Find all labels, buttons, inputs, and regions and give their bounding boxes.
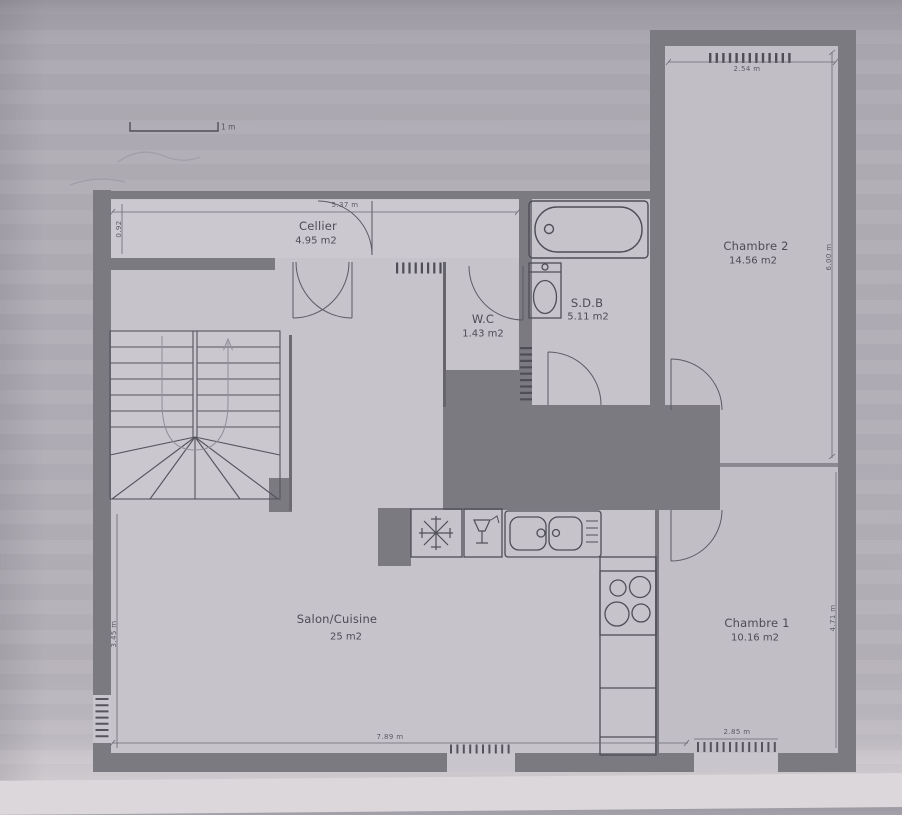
room-label-chambre2: Chambre 2 bbox=[723, 239, 788, 253]
dimension-label-chambre1-height: 4.71 m bbox=[829, 604, 837, 631]
wall-chambre2-top bbox=[650, 30, 856, 46]
wall-left bbox=[93, 190, 111, 771]
window-salon-gap bbox=[447, 753, 515, 772]
pencil-scribble bbox=[70, 152, 200, 185]
window-chambre1-gap bbox=[694, 753, 778, 772]
wall-chambre-divider bbox=[720, 463, 838, 467]
wall-kitchen-stub bbox=[378, 508, 411, 566]
room-area-chambre1: 10.16 m2 bbox=[731, 633, 779, 644]
room-label-cellier: Cellier bbox=[299, 219, 337, 233]
room-label-sdb: S.D.B bbox=[571, 296, 603, 310]
scale-label: 1 m bbox=[221, 123, 235, 132]
snowflake-icon bbox=[419, 516, 453, 550]
room-area-sdb: 5.11 m2 bbox=[567, 312, 609, 323]
dimension-label-salon-width: 7.89 m bbox=[376, 733, 403, 741]
scale-bar bbox=[130, 122, 218, 131]
wall-wc-left bbox=[443, 262, 446, 407]
floor-plan bbox=[0, 0, 902, 797]
paper-edge bbox=[0, 773, 902, 815]
room-area-cellier: 4.95 m2 bbox=[295, 236, 337, 247]
wall-right bbox=[838, 30, 856, 772]
wall-under-cellier bbox=[93, 258, 275, 270]
dimension-label-cellier-depth: 0.92 bbox=[115, 220, 123, 237]
wall-chambre2-left bbox=[650, 46, 665, 410]
wall-stair-right bbox=[289, 335, 292, 511]
floor-plan-drawing bbox=[0, 0, 902, 797]
room-label-salon: Salon/Cuisine bbox=[297, 612, 377, 626]
room-label-chambre1: Chambre 1 bbox=[724, 616, 789, 630]
wall-wc-bottom bbox=[443, 370, 527, 410]
wall-top-cellier-sdb bbox=[93, 191, 652, 199]
room-area-salon: 25 m2 bbox=[330, 632, 362, 643]
wall-middle-band bbox=[443, 405, 720, 510]
room-label-wc: W.C bbox=[472, 312, 494, 326]
dimension-label-chambre2-height: 6.00 m bbox=[825, 243, 833, 270]
dimension-label-chambre1-window: 2.85 m bbox=[723, 728, 750, 736]
dimension-label-cellier-width: 5.37 m bbox=[331, 201, 358, 209]
room-area-wc: 1.43 m2 bbox=[462, 329, 504, 340]
dimension-label-chambre2-window: 2.54 m bbox=[733, 65, 760, 73]
room-area-chambre2: 14.56 m2 bbox=[729, 256, 777, 267]
dimension-label-salon-height: 3.45 m bbox=[110, 620, 118, 647]
